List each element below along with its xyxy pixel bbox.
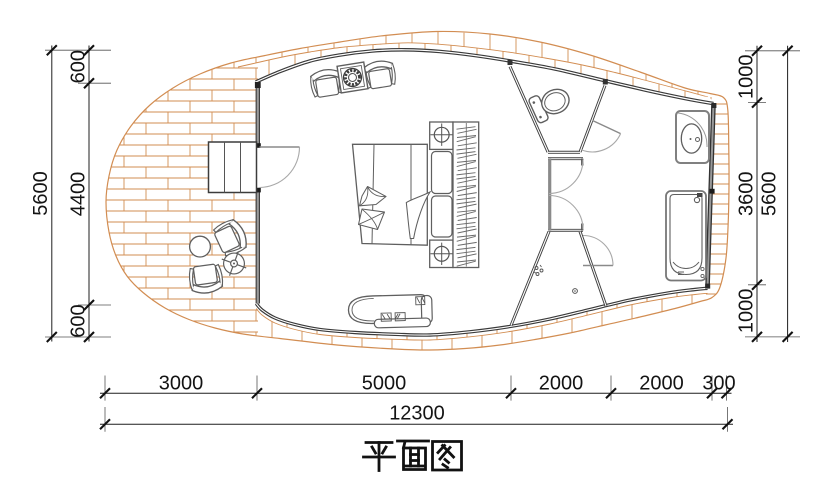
- svg-text:4400: 4400: [68, 172, 90, 217]
- svg-text:600: 600: [68, 304, 90, 337]
- svg-text:1000: 1000: [736, 289, 758, 334]
- svg-text:2000: 2000: [539, 373, 584, 395]
- svg-text:5600: 5600: [30, 171, 52, 216]
- svg-text:3000: 3000: [159, 373, 204, 395]
- svg-text:5600: 5600: [759, 172, 781, 217]
- svg-text:1000: 1000: [736, 54, 758, 99]
- svg-text:300: 300: [702, 373, 735, 395]
- svg-text:5000: 5000: [362, 373, 407, 395]
- svg-text:600: 600: [68, 50, 90, 83]
- svg-text:3600: 3600: [736, 171, 758, 216]
- svg-text:2000: 2000: [639, 373, 684, 395]
- svg-text:12300: 12300: [389, 403, 445, 425]
